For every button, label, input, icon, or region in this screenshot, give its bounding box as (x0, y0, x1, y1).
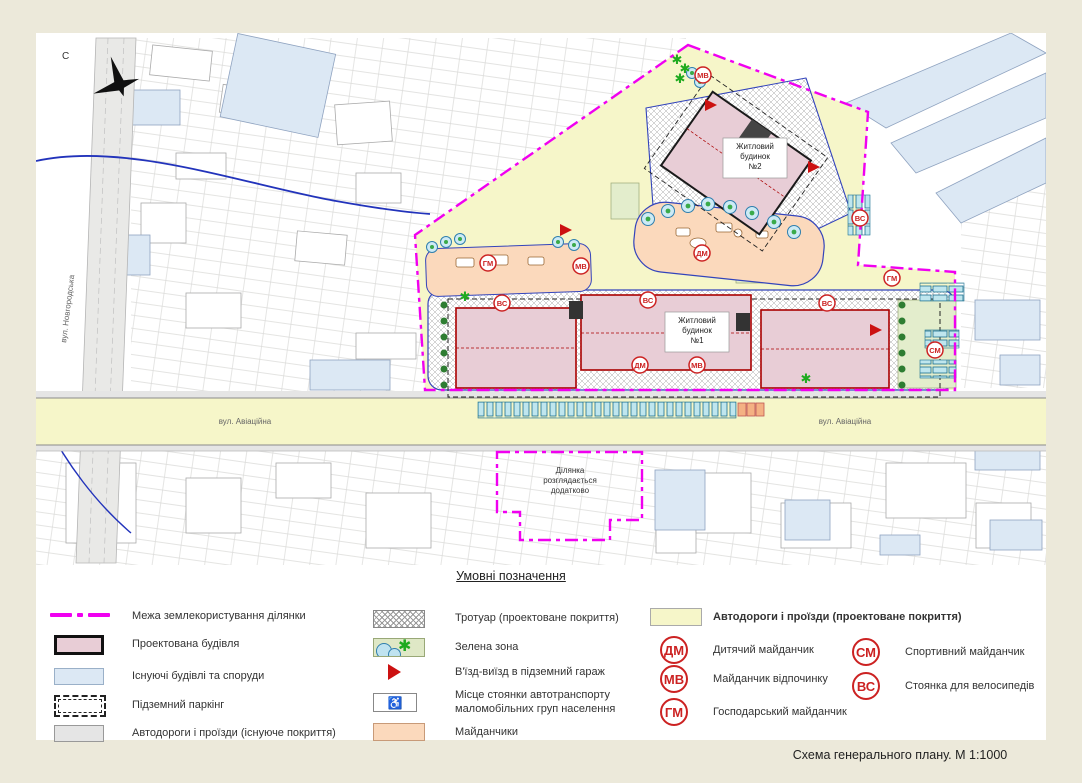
svg-text:МВ: МВ (575, 262, 587, 271)
street-aviatsiina-label-right: вул. Авіаційна (819, 417, 872, 426)
svg-text:✱: ✱ (675, 71, 686, 86)
disabled-parking-label-1: Місце стоянки автотранспорту (455, 689, 610, 701)
svg-text:✱: ✱ (460, 289, 471, 304)
sidewalk-label: Тротуар (проектоване покриття) (455, 612, 619, 624)
gm-label: Господарський майданчик (713, 706, 847, 718)
roads-proposed-swatch (650, 608, 702, 626)
green-zone-label: Зелена зона (455, 641, 518, 653)
svg-text:МВ: МВ (691, 361, 703, 370)
svg-text:ДМ: ДМ (696, 249, 708, 258)
svg-text:будинок: будинок (682, 326, 712, 335)
svg-text:Ділянка: Ділянка (556, 466, 585, 475)
svg-text:СМ: СМ (929, 346, 941, 355)
existing-buildings-swatch (54, 668, 104, 685)
disabled-parking-label-2: маломобільних груп населення (455, 703, 615, 715)
svg-text:№2: №2 (748, 162, 762, 171)
dm-label: Дитячий майданчик (713, 644, 814, 656)
mv-badge-text: МВ (664, 672, 684, 687)
svg-text:ВС: ВС (643, 296, 654, 305)
svg-text:будинок: будинок (740, 152, 770, 161)
gm-badge: ГМ (660, 698, 688, 726)
svg-text:ВС: ВС (497, 299, 508, 308)
roads-existing-swatch (54, 725, 104, 742)
underground-parking-swatch (54, 695, 106, 717)
svg-text:ДМ: ДМ (634, 361, 646, 370)
svg-text:ГМ: ГМ (483, 259, 494, 268)
vs-badge-text: ВС (857, 679, 875, 694)
north-label: С (62, 51, 69, 62)
garage-entry-label: В'їзд-виїзд в підземний гараж (455, 666, 605, 678)
underground-parking-label: Підземний паркінг (132, 699, 224, 711)
dm-badge-text: ДМ (664, 643, 684, 658)
svg-text:МВ: МВ (697, 71, 709, 80)
roads-proposed-label: Автодороги і проїзди (проектоване покрит… (713, 611, 962, 623)
sidewalk-swatch (373, 610, 425, 628)
sm-badge: СМ (852, 638, 880, 666)
boundary-swatch (50, 613, 112, 617)
svg-text:ГМ: ГМ (887, 274, 898, 283)
drawing-title: Схема генерального плану. М 1:1000 (740, 748, 1060, 762)
playgrounds-label: Майданчики (455, 726, 518, 738)
plan-sheet: вул. Новгородська (36, 33, 1046, 740)
legend-heading: Умовні позначення (416, 569, 606, 583)
disabled-parking-swatch: ♿ (373, 693, 417, 712)
gm-badge-text: ГМ (665, 705, 683, 720)
green-zone-swatch: ✱ (373, 638, 425, 657)
street-aviatsiina (36, 391, 1046, 451)
proposed-building-label: Проектована будівля (132, 638, 239, 650)
general-plan-map: вул. Новгородська (36, 33, 1046, 565)
dm-badge: ДМ (660, 636, 688, 664)
proposed-building-swatch (54, 635, 104, 655)
svg-text:Житловий: Житловий (736, 142, 774, 151)
sm-label: Спортивний майданчик (905, 646, 1024, 658)
existing-buildings-label: Існуючі будівлі та споруди (132, 670, 264, 682)
svg-text:№1: №1 (690, 336, 704, 345)
svg-text:додатково: додатково (551, 486, 590, 495)
legend: Умовні позначення Межа землекористування… (36, 565, 1046, 740)
vs-label: Стоянка для велосипедів (905, 680, 1034, 692)
boundary-label: Межа землекористування ділянки (132, 610, 306, 622)
garage-entry-swatch (388, 664, 401, 680)
svg-text:ВС: ВС (822, 299, 833, 308)
svg-text:ВС: ВС (855, 214, 866, 223)
building-2-label: Житловий будинок №2 (723, 138, 787, 178)
building-1-label: Житловий будинок №1 (665, 312, 729, 352)
vs-badge: ВС (852, 672, 880, 700)
sm-badge-text: СМ (856, 645, 876, 660)
street-aviatsiina-label-left: вул. Авіаційна (219, 417, 272, 426)
playgrounds-swatch (373, 723, 425, 741)
svg-text:Житловий: Житловий (678, 316, 716, 325)
svg-text:розглядається: розглядається (543, 476, 597, 485)
mv-badge: МВ (660, 665, 688, 693)
svg-text:✱: ✱ (801, 371, 812, 386)
mv-label: Майданчик відпочинку (713, 673, 828, 685)
roads-existing-label: Автодороги і проїзди (існуюче покриття) (132, 727, 336, 739)
